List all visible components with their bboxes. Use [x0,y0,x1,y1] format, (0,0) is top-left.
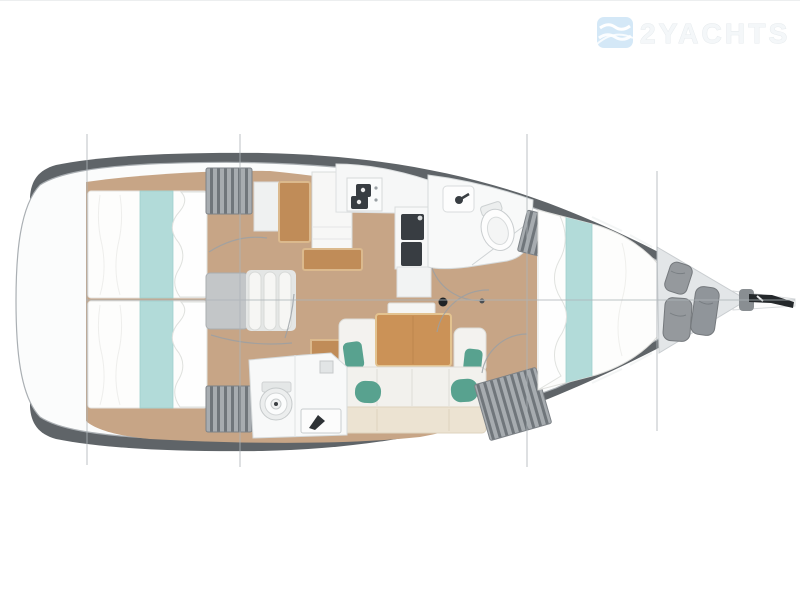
teal-seat-cushion [354,380,381,403]
settee-cushion-roll [264,272,276,330]
logo-tile [597,17,633,48]
galley-wood-locker [303,249,362,270]
teal-seat-cushion [450,378,479,403]
chart-table [279,182,310,242]
yacht-floor-plan: 2YACHTS [0,0,800,600]
galley-cabinet [254,182,279,231]
stove-knob [374,186,377,189]
bow-cushion [662,297,692,342]
hanging-locker [206,168,252,214]
bed-runner [140,301,173,408]
sofa-bench [341,407,486,433]
mast-post [439,298,448,307]
galley-lower-cabinet [397,267,431,297]
sink-faucet [418,216,423,221]
toilet-drain [274,402,278,406]
galley-sink [401,242,422,266]
watermark: 2YACHTS [597,17,791,49]
hanging-locker [206,386,252,432]
burner-ring [361,188,365,192]
head-forward [428,175,556,269]
burner-ring [357,200,361,204]
vent-box [320,361,333,373]
watermark-text: 2YACHTS [640,18,791,49]
floor-plan-drawing: 2YACHTS [0,1,800,600]
settee-back [206,273,248,329]
bed-runner [140,191,173,298]
settee-cushion-roll [249,272,261,330]
waves-logo-icon [597,17,633,48]
stove-knob [374,198,377,201]
